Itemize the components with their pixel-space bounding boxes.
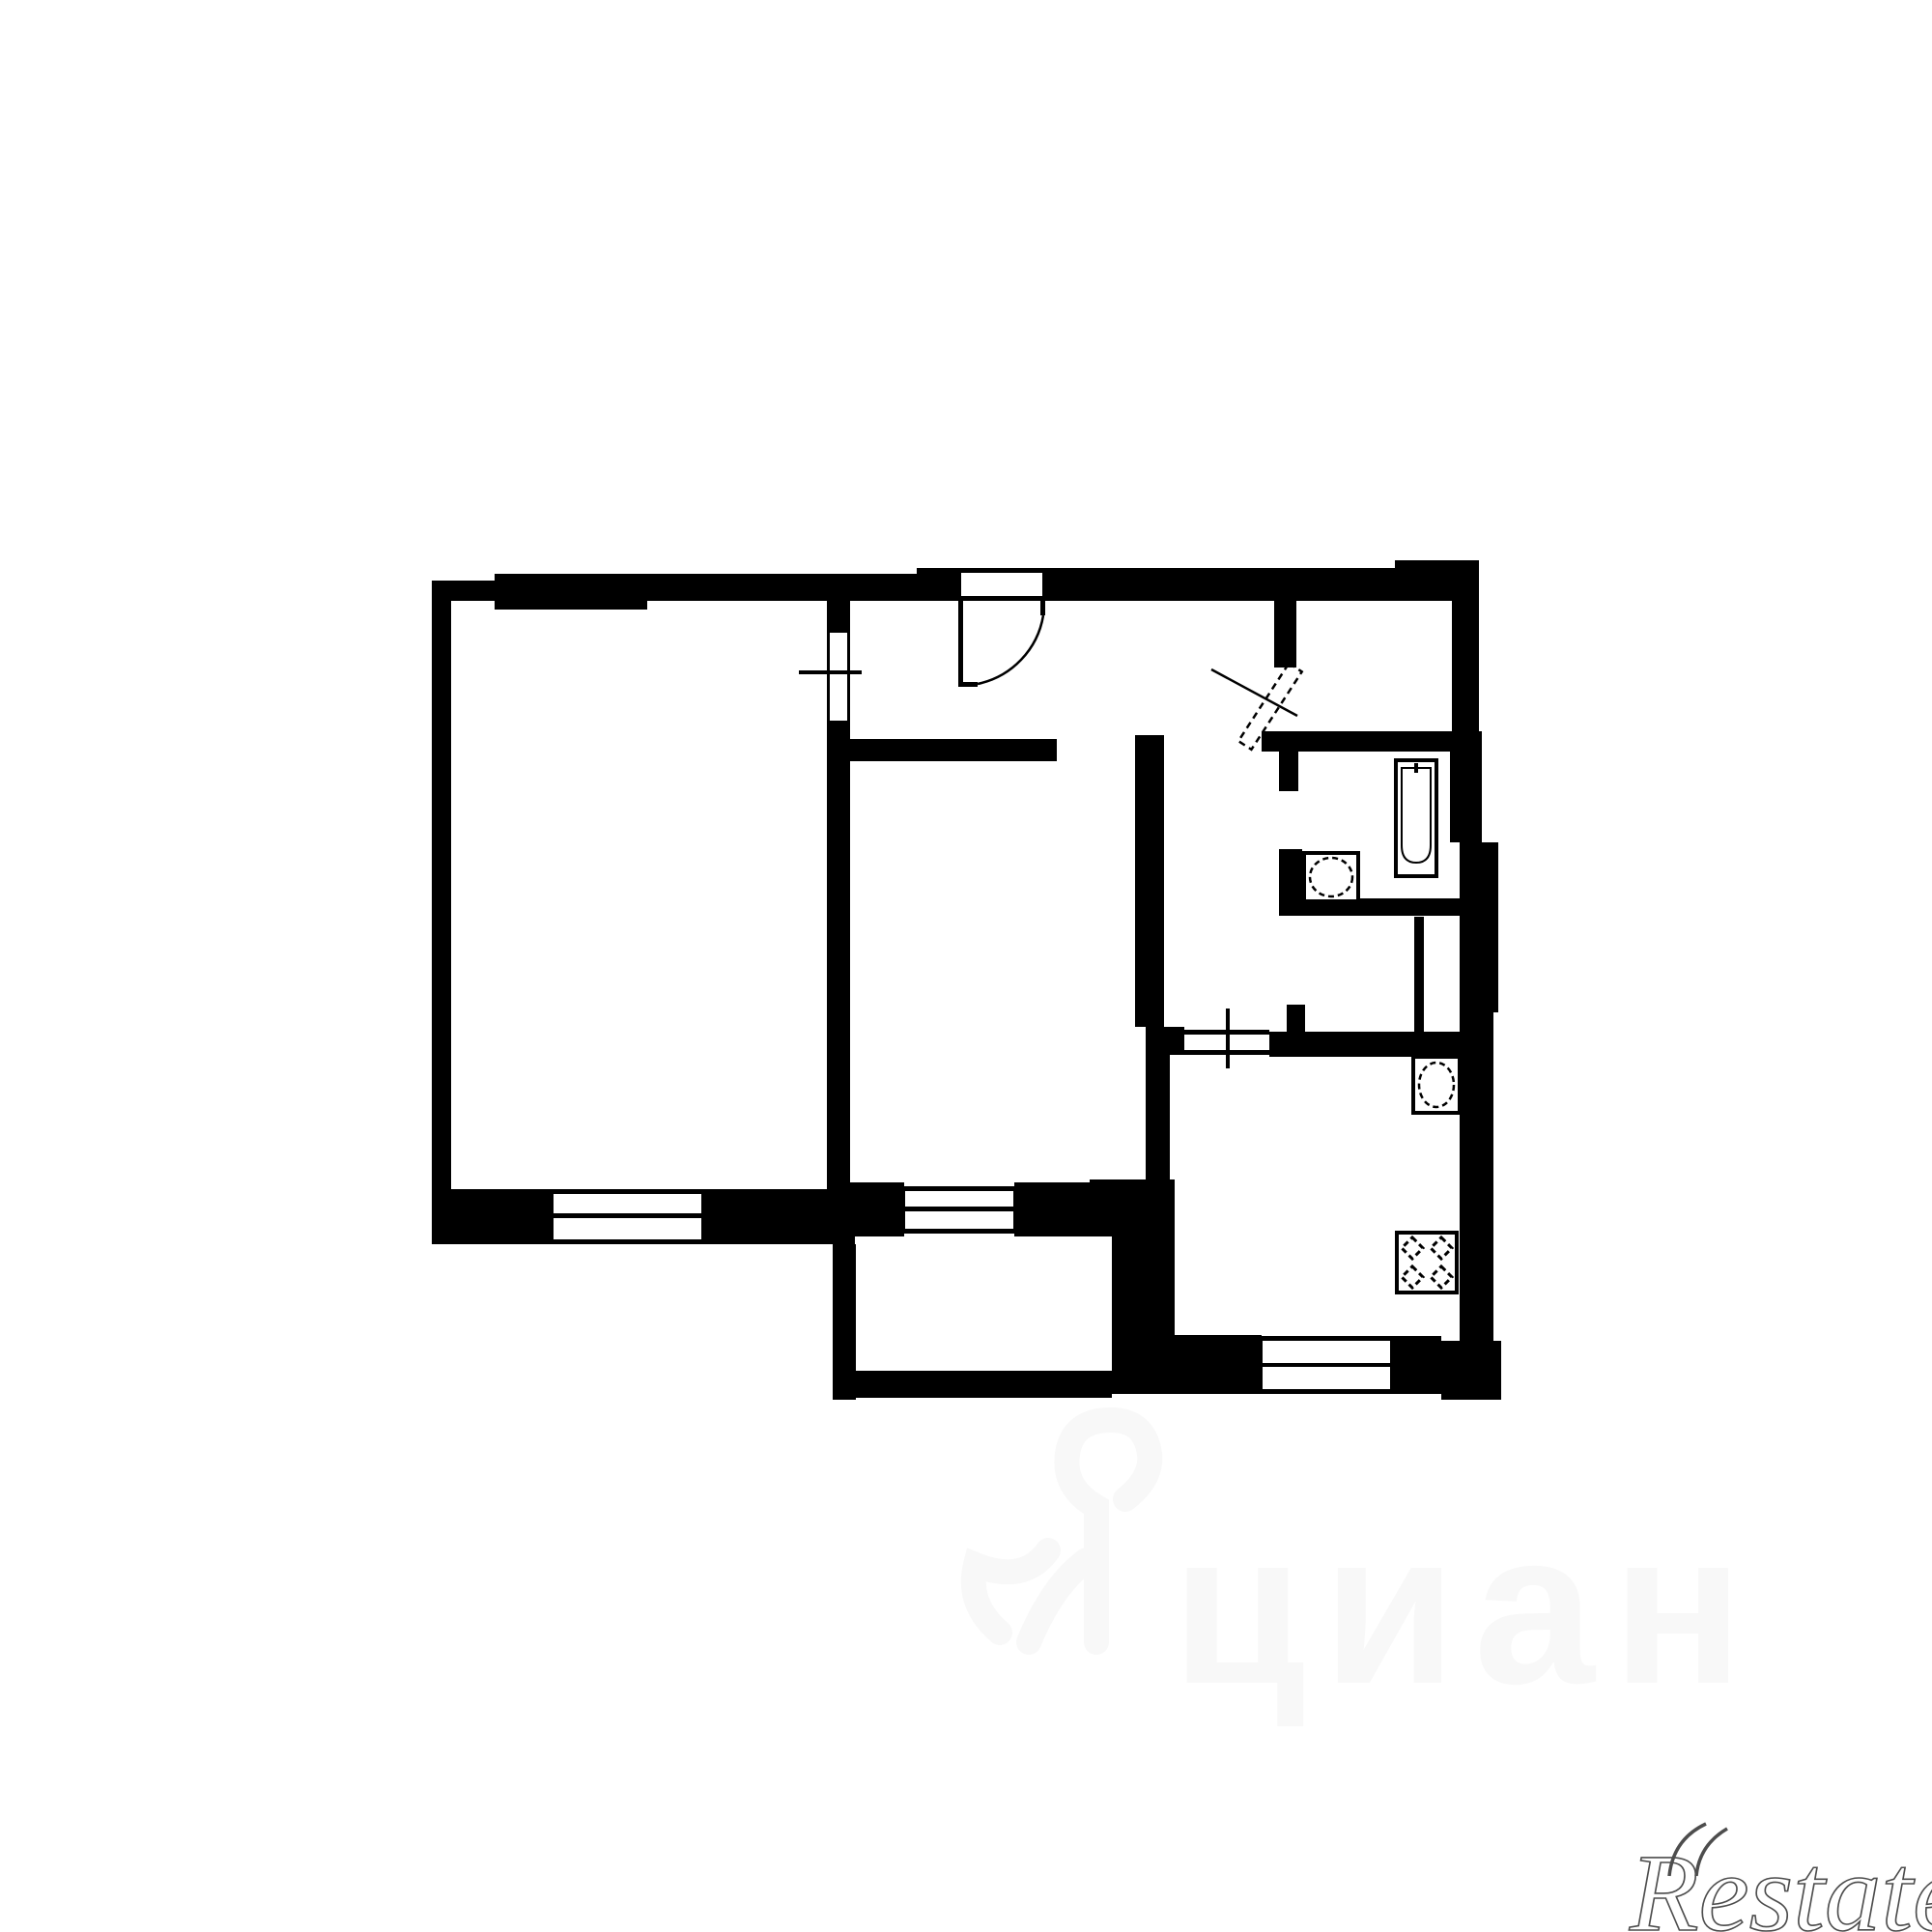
svg-text:Restate: Restate bbox=[1629, 1832, 1932, 1932]
svg-text:циан: циан bbox=[1172, 1486, 1761, 1729]
